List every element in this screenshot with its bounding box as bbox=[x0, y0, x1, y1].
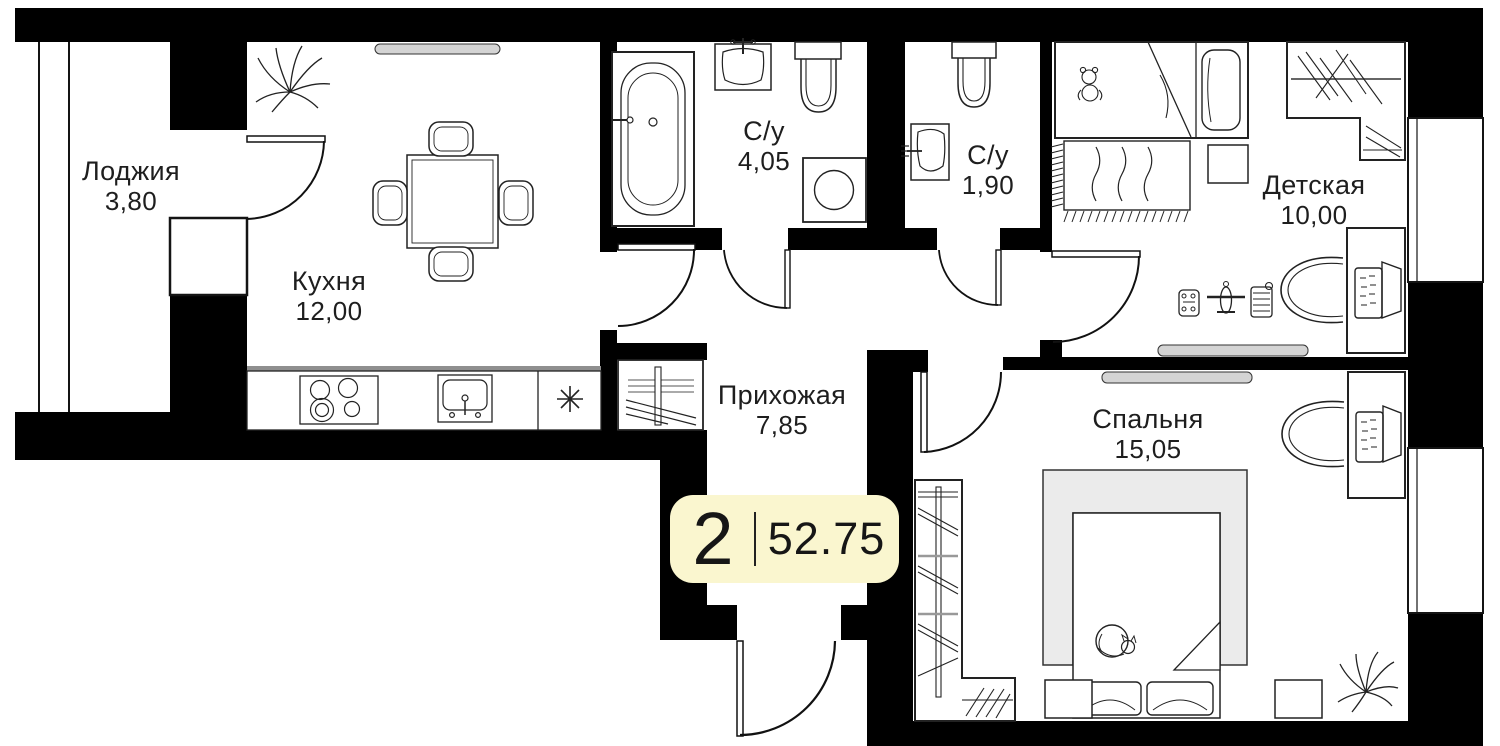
kitchen-door bbox=[618, 244, 695, 326]
toy-car-icon bbox=[1179, 290, 1199, 316]
children-door bbox=[1052, 251, 1140, 342]
toy-robot-icon bbox=[1251, 283, 1273, 318]
bathroom-main-sink-icon bbox=[715, 38, 771, 90]
nightstand-left bbox=[1045, 680, 1092, 718]
kitchen-shelf bbox=[375, 44, 500, 54]
room-area: 1,90 bbox=[962, 171, 1014, 200]
children-pouf bbox=[1208, 145, 1248, 183]
window-bedroom bbox=[1408, 448, 1483, 613]
window-children bbox=[1408, 118, 1483, 282]
window-balcony-block bbox=[170, 218, 247, 295]
room-name: Кухня bbox=[292, 266, 366, 297]
room-label-bathroom-main: С/у 4,05 bbox=[738, 116, 790, 176]
loggia-glazing bbox=[39, 42, 69, 412]
room-area: 3,80 bbox=[82, 187, 180, 216]
toilet-main-icon bbox=[795, 42, 841, 112]
children-rug bbox=[1051, 141, 1190, 222]
children-wardrobe bbox=[1287, 42, 1405, 160]
room-label-kitchen: Кухня 12,00 bbox=[292, 266, 366, 326]
bathroom-main-door bbox=[724, 250, 790, 308]
room-label-hallway: Прихожая 7,85 bbox=[718, 380, 846, 440]
children-bed bbox=[1055, 42, 1248, 138]
room-name: С/у bbox=[962, 140, 1014, 171]
washing-machine-icon bbox=[803, 158, 866, 222]
children-desk bbox=[1281, 228, 1405, 353]
nightstand-right bbox=[1275, 680, 1322, 718]
kitchen-table bbox=[373, 122, 533, 281]
desk-chair bbox=[1282, 401, 1344, 466]
entrance-door bbox=[737, 641, 835, 736]
info-badge: 2 52.75 bbox=[672, 497, 897, 581]
bedroom-plant-icon bbox=[1338, 652, 1398, 712]
room-label-bedroom: Спальня 15,05 bbox=[1092, 404, 1203, 464]
room-area: 7,85 bbox=[718, 411, 846, 440]
floorplan-drawing bbox=[0, 0, 1500, 746]
bedroom-shelf bbox=[1102, 372, 1252, 383]
balcony-door bbox=[247, 136, 325, 219]
room-label-loggia: Лоджия 3,80 bbox=[82, 156, 180, 216]
room-name: Прихожая bbox=[718, 380, 846, 411]
kitchen-plant-icon bbox=[256, 46, 330, 112]
bedroom-wardrobe bbox=[915, 480, 1015, 721]
hallway-closet bbox=[618, 360, 703, 430]
children-shelf bbox=[1158, 345, 1308, 356]
badge-rooms-count: 2 bbox=[672, 504, 754, 574]
bathtub-icon bbox=[612, 52, 694, 226]
toilet-guest-icon bbox=[952, 42, 996, 107]
bathroom-guest-sink-icon bbox=[901, 124, 949, 180]
pillow-right bbox=[1147, 682, 1213, 715]
room-area: 4,05 bbox=[738, 147, 790, 176]
room-area: 12,00 bbox=[292, 297, 366, 326]
toys-icons bbox=[1179, 282, 1273, 318]
room-name: С/у bbox=[738, 116, 790, 147]
room-name: Спальня bbox=[1092, 404, 1203, 435]
toy-plane-icon bbox=[1207, 282, 1245, 314]
room-name: Детская bbox=[1263, 170, 1366, 201]
badge-total-area: 52.75 bbox=[756, 513, 897, 565]
room-name: Лоджия bbox=[82, 156, 180, 187]
bedroom-desk bbox=[1282, 372, 1405, 498]
room-area: 10,00 bbox=[1263, 201, 1366, 230]
bathroom-guest-door bbox=[939, 250, 1001, 305]
room-area: 15,05 bbox=[1092, 435, 1203, 464]
kitchen-counter bbox=[247, 366, 601, 430]
room-label-bathroom-guest: С/у 1,90 bbox=[962, 140, 1014, 200]
bedroom-door bbox=[921, 372, 1001, 452]
desk-chair bbox=[1281, 257, 1343, 322]
floorplan: Лоджия 3,80 Кухня 12,00 С/у 4,05 С/у 1,9… bbox=[0, 0, 1500, 746]
room-label-children: Детская 10,00 bbox=[1263, 170, 1366, 230]
